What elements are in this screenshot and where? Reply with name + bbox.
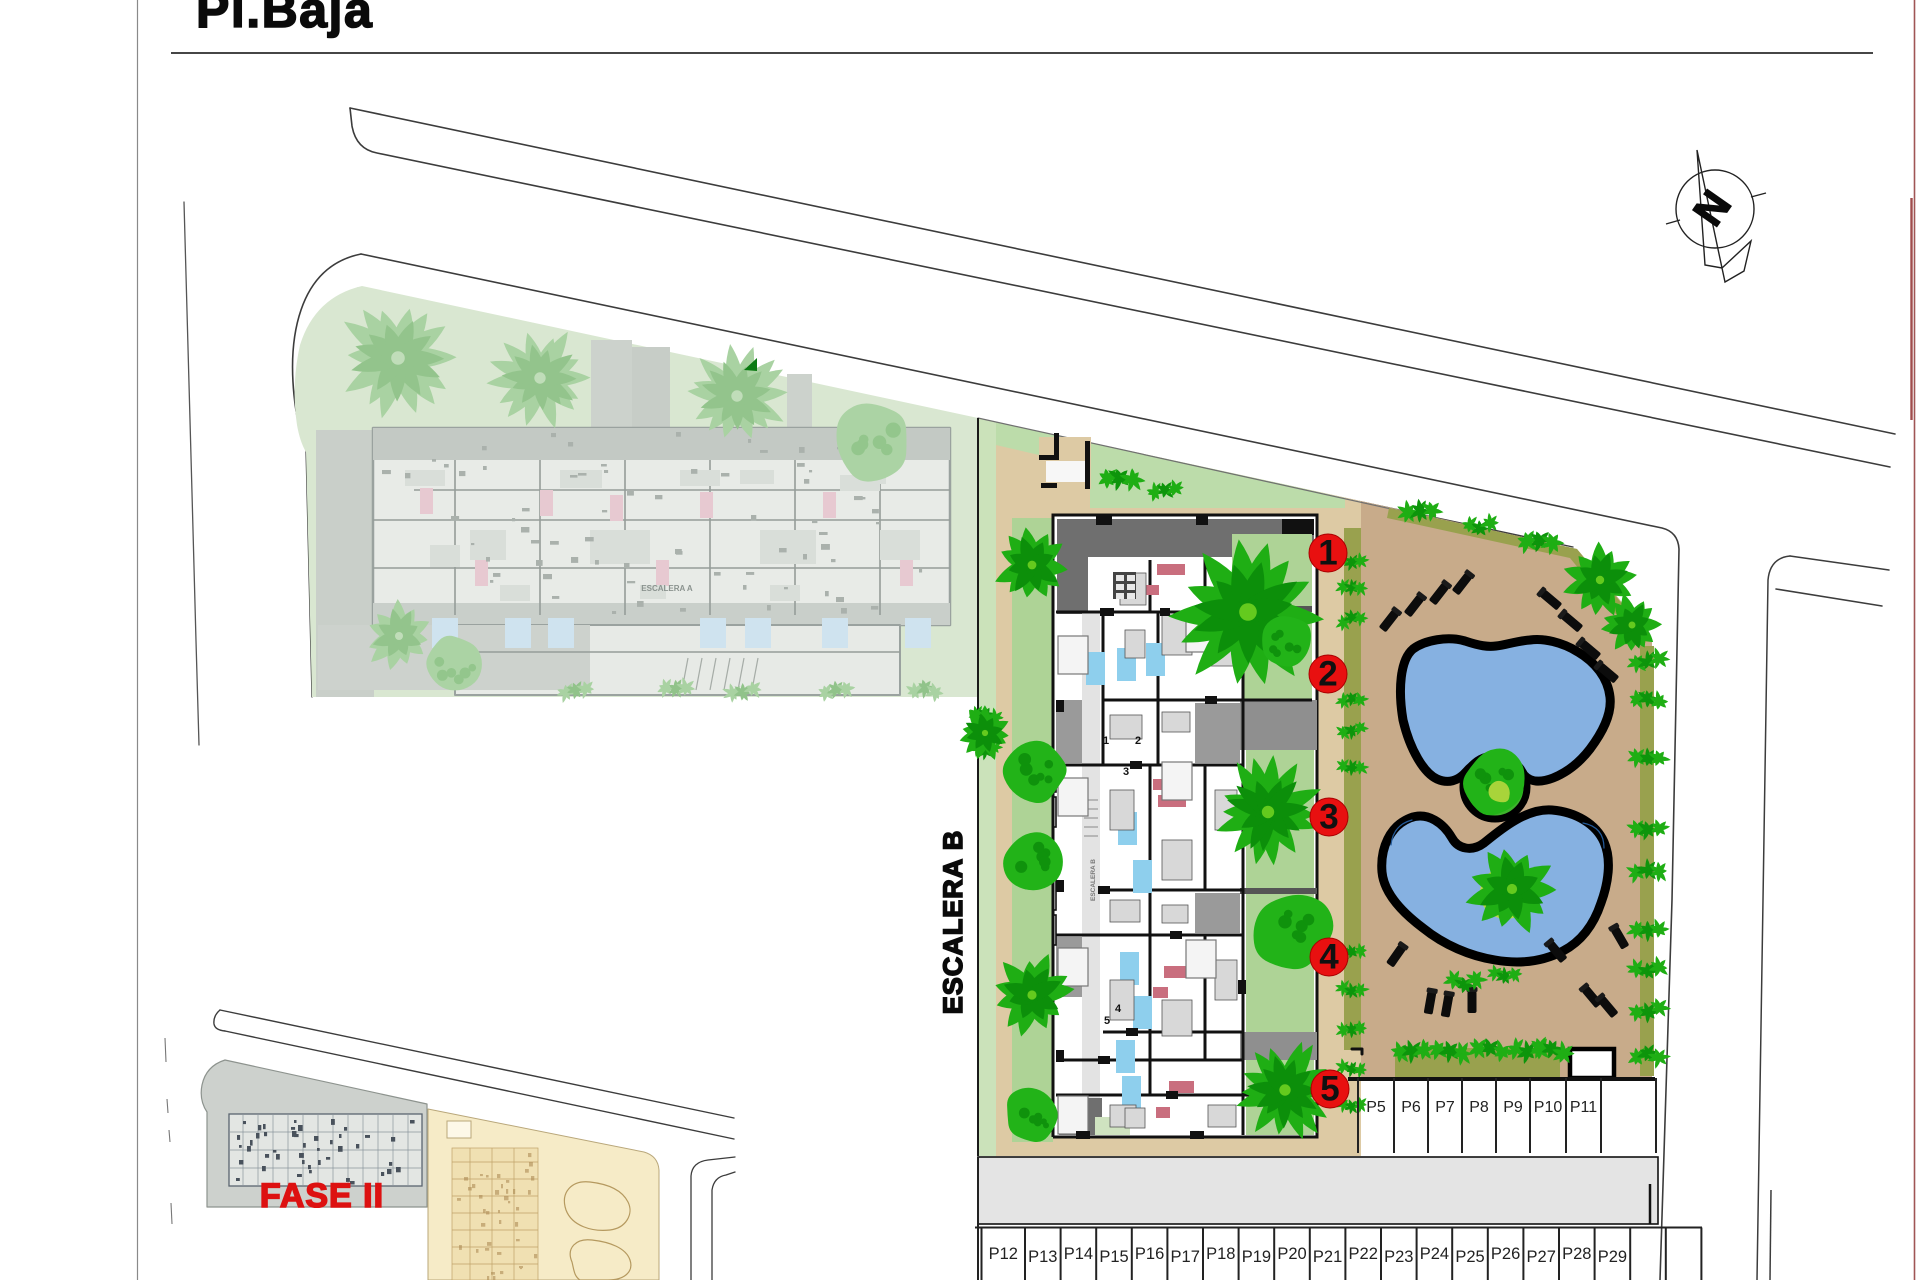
svg-text:2: 2 bbox=[1318, 655, 1337, 694]
svg-text:P9: P9 bbox=[1503, 1099, 1523, 1116]
svg-text:1: 1 bbox=[1103, 735, 1109, 747]
svg-text:P10: P10 bbox=[1534, 1099, 1563, 1116]
svg-text:P22: P22 bbox=[1349, 1245, 1378, 1263]
svg-text:P23: P23 bbox=[1384, 1248, 1413, 1266]
svg-text:4: 4 bbox=[1115, 1003, 1122, 1015]
svg-text:FASE II: FASE II bbox=[260, 1177, 384, 1215]
svg-text:P27: P27 bbox=[1527, 1248, 1556, 1266]
svg-text:P15: P15 bbox=[1099, 1248, 1128, 1266]
svg-text:4: 4 bbox=[1319, 938, 1339, 977]
svg-text:P5: P5 bbox=[1366, 1099, 1386, 1116]
svg-text:1: 1 bbox=[1318, 534, 1337, 573]
svg-text:P12: P12 bbox=[989, 1245, 1018, 1263]
svg-text:P20: P20 bbox=[1277, 1245, 1306, 1263]
svg-text:P21: P21 bbox=[1313, 1248, 1342, 1266]
svg-text:P8: P8 bbox=[1469, 1099, 1489, 1116]
svg-text:ESCALERA B: ESCALERA B bbox=[938, 830, 968, 1015]
svg-text:P6: P6 bbox=[1401, 1099, 1421, 1116]
svg-text:P25: P25 bbox=[1455, 1248, 1484, 1266]
svg-text:ESCALERA B: ESCALERA B bbox=[1090, 859, 1097, 901]
svg-text:P19: P19 bbox=[1242, 1248, 1271, 1266]
svg-text:P17: P17 bbox=[1171, 1248, 1200, 1266]
svg-text:5: 5 bbox=[1104, 1015, 1110, 1027]
svg-text:5: 5 bbox=[1320, 1070, 1339, 1109]
svg-text:P7: P7 bbox=[1435, 1099, 1455, 1116]
svg-text:P14: P14 bbox=[1064, 1245, 1093, 1263]
svg-text:P29: P29 bbox=[1598, 1248, 1627, 1266]
svg-text:P11: P11 bbox=[1570, 1099, 1597, 1116]
svg-text:P18: P18 bbox=[1206, 1245, 1235, 1263]
svg-text:3: 3 bbox=[1319, 798, 1338, 837]
svg-text:P13: P13 bbox=[1028, 1248, 1057, 1266]
svg-text:P16: P16 bbox=[1135, 1245, 1164, 1263]
svg-text:ESCALERA A: ESCALERA A bbox=[641, 584, 693, 593]
svg-text:P26: P26 bbox=[1491, 1245, 1520, 1263]
svg-text:Pl.Baja: Pl.Baja bbox=[196, 0, 373, 38]
svg-text:2: 2 bbox=[1135, 735, 1141, 747]
svg-text:P24: P24 bbox=[1420, 1245, 1449, 1263]
svg-text:P28: P28 bbox=[1562, 1245, 1591, 1263]
svg-text:3: 3 bbox=[1123, 766, 1129, 778]
